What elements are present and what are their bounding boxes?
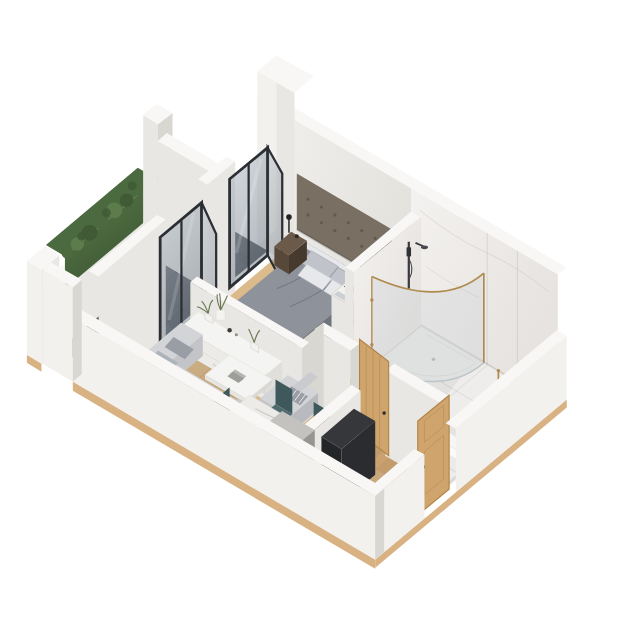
scene-root: [27, 56, 567, 569]
floor-plan-render: [0, 0, 630, 630]
tub-faucet-icon: [497, 369, 500, 372]
vase-icon: [227, 328, 231, 332]
door-handle-icon: [382, 411, 386, 415]
vase-icon: [235, 333, 238, 336]
apartment-isometric-svg: [0, 0, 630, 630]
bedroom-balcony-door: [230, 148, 268, 288]
clock-icon: [295, 234, 299, 238]
